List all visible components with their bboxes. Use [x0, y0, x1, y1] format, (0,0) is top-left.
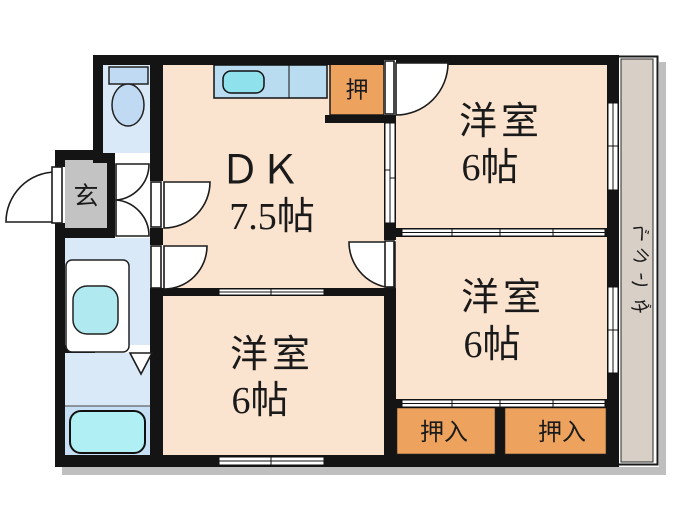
kitchen-sink	[223, 71, 264, 93]
room-label-bottom-size: 6帖	[231, 380, 288, 422]
room-label-top-right-name: 洋室	[459, 101, 543, 143]
kitchen-counter	[214, 65, 327, 98]
entrance-label: 玄	[73, 183, 98, 211]
closet-sliding-doors	[402, 400, 605, 407]
room-label-top-right-size: 6帖	[461, 147, 518, 189]
window-bottom	[219, 457, 324, 465]
sliding-door-dk-topright	[385, 123, 395, 223]
closet-top-label: 押	[346, 78, 369, 103]
wash-dk-door-leaf	[151, 246, 161, 288]
wall-segment	[93, 55, 619, 65]
sliding-door-dk-bottom-room	[219, 289, 324, 295]
closet-bottom-right-label: 押入	[538, 419, 586, 446]
room-label-dk-size: 7.5帖	[229, 196, 315, 238]
top-room-door-leaf	[385, 61, 394, 114]
sliding-door-between-right-rooms	[402, 229, 605, 236]
window-right-middle	[608, 287, 618, 373]
wall-segment	[107, 160, 115, 230]
entrance-door-leaf	[52, 167, 62, 223]
entrance-door-swing-arc	[6, 172, 56, 222]
toilet-door-opening	[115, 153, 150, 163]
washbasin-bowl	[73, 286, 118, 334]
room-label-dk-name: ＤＫ	[220, 148, 300, 193]
toilet-bowl	[112, 84, 144, 126]
floor-plan-image: ベ ラ ン ダ	[0, 0, 700, 525]
floor-plan-svg: ベ ラ ン ダ	[0, 0, 700, 525]
wall-segment	[496, 407, 504, 455]
toilet-tank	[109, 67, 148, 84]
window-right-top	[608, 103, 618, 190]
washbasin	[66, 260, 129, 352]
wall-segment	[325, 115, 396, 123]
wall-segment	[55, 455, 619, 467]
room-label-middle-right-name: 洋室	[461, 277, 545, 319]
room-label-bottom-name: 洋室	[230, 334, 314, 376]
closet-bottom-left-label: 押入	[420, 419, 468, 446]
middle-room-door-leaf	[385, 241, 394, 287]
room-label-middle-right-size: 6帖	[463, 324, 520, 366]
hall-dk-door-leaf	[151, 182, 161, 227]
wall-segment	[93, 55, 103, 160]
bathtub	[70, 411, 145, 453]
